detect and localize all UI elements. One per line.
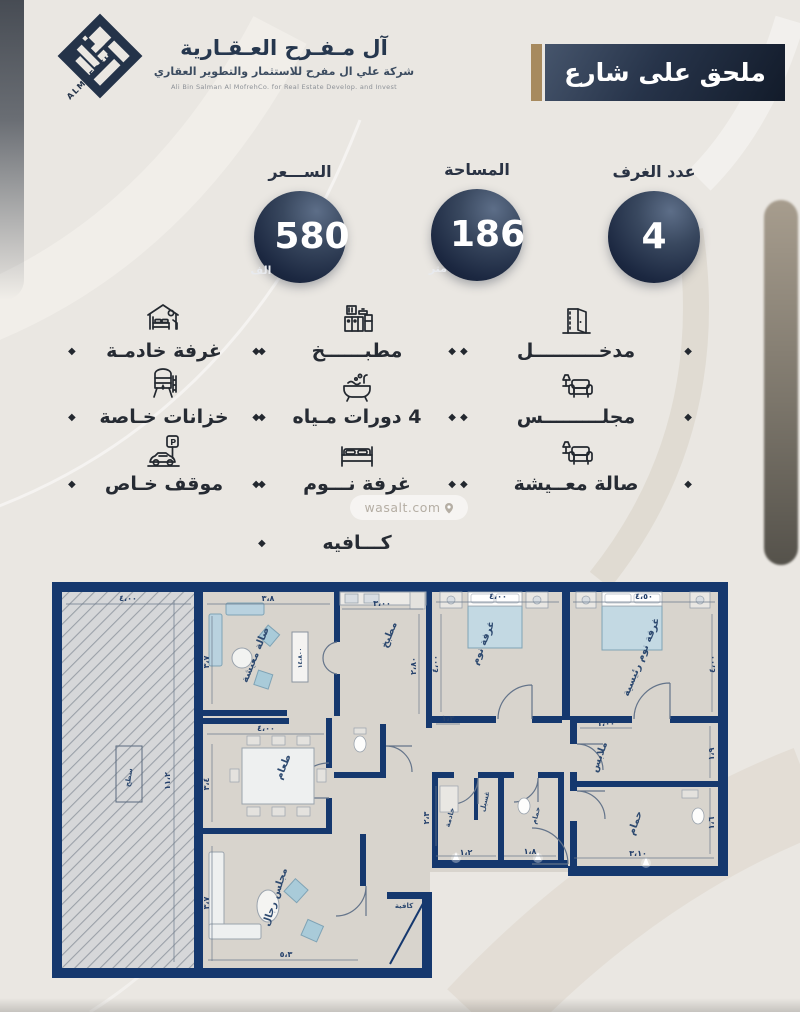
majlis-sofa-icon [555, 366, 597, 404]
stat-area-unit: متر [429, 262, 447, 281]
dim-kitchen-w: ٣،٠٠ [373, 599, 391, 608]
dim-bath2-h: ١،٦ [707, 816, 716, 829]
bullet-icon: ◆ [448, 346, 456, 357]
feature-kitchen: ◆ مطبــــــخ ◆ [258, 300, 456, 362]
feature-tanks-label: خزانات خـاصة [99, 406, 228, 428]
brand-block: آل مـفـرح العـقـارية شركة علي ال مفرح لل… [150, 36, 418, 91]
dim-terrace-w: ٤،٠٠ [119, 594, 137, 603]
bullet-icon: ◆ [460, 412, 468, 423]
dim-dining-w: ٤،٠٠ [257, 724, 275, 733]
feature-cafe: ◆ كـــافيه ◆ [258, 530, 456, 554]
tv-unit-label: ١٤،٨٠٠ [297, 648, 304, 669]
bullet-icon: ◆ [258, 538, 266, 549]
dim-bedroom-h: ٤،٠٠ [431, 655, 440, 673]
feature-parking-label: موقف خـاص [105, 473, 223, 495]
feature-maidroom-label: غرفة خادمـة [106, 340, 222, 362]
company-logo: ALMOFREH [48, 8, 158, 126]
dim-terrace-h: ١١،٢ [163, 772, 172, 790]
bullet-icon: ◆ [68, 479, 76, 490]
feature-baths-kitchen-label: مطبــــــخ [312, 340, 403, 362]
dim-living-h: ٣،٧ [202, 655, 211, 668]
watermark-pill: wasalt.com [350, 495, 468, 520]
dim-maid-w: ١،٢ [460, 848, 473, 857]
banner-gold-bar [531, 44, 542, 101]
bullet-icon: ◆ [448, 412, 456, 423]
maid-room-icon [142, 300, 186, 338]
stat-area-circle: 186 متر [431, 189, 523, 281]
feature-bedroom-label: غرفة نـــوم [303, 473, 411, 495]
feature-living-label: صالة معــيشة [514, 473, 639, 495]
dim-dining-h: ٣،٤ [202, 777, 211, 790]
feature-cafe-label: كـــافيه [322, 532, 391, 554]
dim-bath1-w: ١،٨ [524, 847, 537, 856]
stat-rooms-circle: 4 [608, 191, 700, 283]
bullet-icon: ◆ [68, 412, 76, 423]
stat-price-unit: الف [250, 264, 271, 283]
feature-entrance: ◆ مدخــــــــــل ◆ [460, 300, 692, 362]
bullet-icon: ◆ [460, 479, 468, 490]
stat-rooms: عدد الغرف 4 [574, 162, 734, 283]
bullet-icon: ◆ [684, 479, 692, 490]
dim-closet-w: ١،٠٠ [597, 719, 615, 728]
bullet-icon: ◆ [684, 346, 692, 357]
stat-area: المساحة 186 متر [397, 160, 557, 281]
dim-closet-h: ١،٩ [707, 747, 716, 760]
stat-area-label: المساحة [444, 160, 510, 179]
feature-tanks: ◆ خزانات خـاصة ◆ [68, 366, 260, 428]
watermark-text: wasalt.com [364, 500, 440, 515]
company-subtitle-en: Ali Bin Salman Al MofrehCo. for Real Est… [150, 83, 418, 91]
tank-icon [144, 366, 184, 404]
stat-area-value: 186 [450, 217, 525, 253]
dim-living-w: ٣،٨ [262, 594, 275, 603]
stat-price: الســـعر 580 الف [220, 162, 380, 283]
dim-majlis-w: ٥،٣ [280, 950, 293, 959]
bullet-icon: ◆ [252, 346, 260, 357]
bed-icon [335, 433, 379, 471]
bullet-icon: ◆ [460, 346, 468, 357]
bullet-icon: ◆ [684, 412, 692, 423]
bullet-icon: ◆ [252, 412, 260, 423]
stat-rooms-value: 4 [641, 219, 666, 255]
parking-letter: P [170, 438, 176, 447]
dim-bath2-w: ٣،١٠ [629, 849, 647, 858]
door-icon [557, 300, 595, 338]
feature-majlis: ◆ مجلـــــــــس ◆ [460, 366, 692, 428]
company-subtitle: شركة علي ال مفرح للاستثمار والتطوير العق… [150, 65, 418, 78]
logo-mark-icon: ALMOFREH [48, 8, 158, 126]
company-name: آل مـفـرح العـقـارية [150, 36, 418, 60]
room-cafe: كافية [395, 902, 414, 910]
bath-icon [337, 366, 377, 404]
dim-majlis-h: ٣،٧ [202, 896, 211, 909]
dim-master-w: ٤،٥٠ [635, 592, 653, 601]
bullet-icon: ◆ [252, 479, 260, 490]
feature-maidroom: ◆ غرفة خادمـة ◆ [68, 300, 260, 362]
stat-price-label: الســـعر [268, 162, 331, 181]
photo-left-shadow [0, 0, 24, 300]
dim-bedroom-w: ٤،٠٠ [489, 592, 507, 601]
parking-icon: P [142, 433, 186, 471]
floorplan: سطح صالة معيشة مطبخ غرفة نوم غرفة نوم رئ… [46, 576, 762, 998]
bullet-icon: ◆ [448, 479, 456, 490]
dim-master-h: ٤،٠٠ [708, 655, 717, 673]
feature-entrance-label: مدخــــــــــل [517, 340, 635, 362]
photo-bottom-shadow [0, 998, 800, 1012]
bullet-icon: ◆ [68, 346, 76, 357]
feature-parking: P ◆ موقف خـاص ◆ [68, 433, 260, 495]
stat-rooms-label: عدد الغرف [613, 162, 696, 181]
dim-hall: ١،٣ [442, 714, 455, 723]
dim-kitchen-h: ٢،٨٠ [409, 657, 418, 675]
feature-baths: ◆ 4 دورات مـياه ◆ [258, 366, 456, 428]
feature-living: ◆ صالة معــيشة ◆ [460, 433, 692, 495]
photo-right-shadow [764, 200, 798, 565]
feature-majlis-label: مجلـــــــــس [517, 406, 636, 428]
stat-price-value: 580 [274, 219, 349, 255]
listing-type-banner: ملحق على شارع [545, 44, 785, 101]
kitchen-icon [337, 300, 377, 338]
dim-maid-h: ٢،٣ [422, 811, 431, 824]
location-pin-icon [444, 502, 454, 514]
stat-price-circle: 580 الف [254, 191, 346, 283]
living-sofa-icon [555, 433, 597, 471]
feature-bedroom: ◆ غرفة نـــوم ◆ [258, 433, 456, 495]
feature-baths-label: 4 دورات مـياه [293, 406, 422, 428]
